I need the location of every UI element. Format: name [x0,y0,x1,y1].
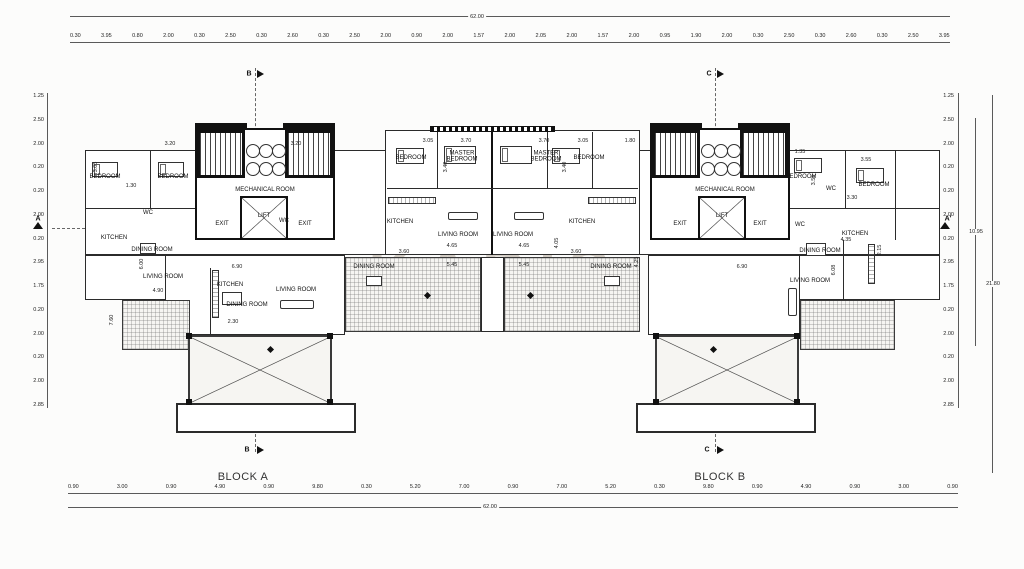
room-label-bedroom: BEDROOM [89,174,120,180]
bottom-total-dimension-line [68,507,958,508]
column-post [794,333,800,339]
room-label-kitchen: KITCHEN [217,282,243,288]
dimension-value: 0.95 [660,33,671,39]
room-label-mechanical-room: MECHANICAL ROOM [695,187,754,193]
room-label-dining-room: DINING ROOM [799,248,840,254]
dimension-value: 9.80 [703,484,714,490]
block-a-balcony-parapet-left [195,123,247,129]
kitchen-counter [388,197,436,204]
plan-dimension: 6.90 [737,264,748,270]
room-label-kitchen: KITCHEN [569,219,595,225]
section-marker-a-prime-arrow [940,222,950,229]
section-marker-c-bottom: C [704,447,709,454]
section-marker-c-bottom-arrow [717,446,724,454]
dimension-value: 3.95 [939,33,950,39]
plan-dimension: 4.90 [153,288,164,294]
bed-symbol [500,146,532,164]
plan-dimension: 3.30 [847,195,858,201]
dimension-value: 5.20 [605,484,616,490]
dimension-value: 2.85 [943,402,954,408]
dimension-value: 1.75 [943,283,954,289]
dimension-value: 1.90 [691,33,702,39]
dimension-value: 3.00 [898,484,909,490]
dimension-value: 0.20 [943,354,954,360]
column-post [327,399,333,405]
top-total-dimension-line [70,16,950,17]
dimension-value: 0.20 [33,307,44,313]
dimension-value: 1.75 [33,283,44,289]
partition-wall [437,132,438,188]
kitchen-counter [212,270,219,318]
partition-wall [790,208,940,209]
section-marker-b-top-arrow [257,70,264,78]
room-label-kitchen: KITCHEN [101,235,127,241]
dimension-value: 2.00 [943,331,954,337]
dimension-value: 2.50 [225,33,236,39]
block-b-label: BLOCK B [694,471,745,483]
room-label-lift: LIFT [716,213,728,219]
room-label-wc: WC [795,222,805,228]
dimension-value: 2.50 [943,117,954,123]
plan-dimension: 3.40 [562,162,568,173]
dimension-value: 0.90 [411,33,422,39]
plan-dimension: 3.40 [443,162,449,173]
room-label-lift: LIFT [258,213,270,219]
floor-plan-drawing: KADIS ESTATES 62.00 0.303.950.802.000.30… [0,0,1024,569]
plan-dimension: 2.30 [228,319,239,325]
dimension-value: 0.30 [815,33,826,39]
dimension-value: 0.20 [943,307,954,313]
room-label-wc: WC [826,186,836,192]
mechanical-equipment-circle [701,144,715,158]
block-a-stairwell-right [285,130,333,178]
plan-dimension: 5.45 [447,262,458,268]
dimension-value: 0.30 [877,33,888,39]
dimension-value: 0.30 [194,33,205,39]
dimension-value: 0.20 [33,188,44,194]
dimension-value: 0.30 [70,33,81,39]
partition-wall [210,268,211,335]
room-label-bedroom: BEDROOM [858,182,889,188]
dimension-value: 2.60 [287,33,298,39]
column-post [794,399,800,405]
top-total-dimension: 62.00 [468,14,486,20]
plan-dimension: 4.25 [634,257,640,268]
top-dimension-chain: 0.303.950.802.000.302.500.302.600.302.50… [70,33,950,39]
block-b-balcony-parapet-right [738,123,790,129]
block-b-stairwell-left [652,130,700,178]
dimension-value: 0.20 [33,164,44,170]
dimension-value: 9.80 [312,484,323,490]
bed-symbol [794,158,822,173]
dimension-value: 1.25 [943,93,954,99]
plan-dimension: 3.05 [578,138,589,144]
room-label-living-room: LIVING ROOM [790,278,830,284]
column-post [186,333,192,339]
mechanical-equipment-circle [714,144,728,158]
room-label-exit: EXIT [673,221,686,227]
room-label-living-room: LIVING ROOM [438,232,478,238]
block-a-lower-platform [176,403,356,433]
dimension-value: 7.00 [556,484,567,490]
kitchen-counter [588,197,636,204]
dimension-value: 0.20 [33,236,44,242]
plan-dimension: 6.08 [831,265,837,276]
section-marker-b-bottom: B [244,447,249,454]
bottom-dimension-chain: 0.903.000.904.900.909.800.305.207.000.90… [68,484,958,490]
room-label-kitchen: KITCHEN [387,219,413,225]
room-label-living-room: LIVING ROOM [493,232,533,238]
dimension-value: 0.80 [132,33,143,39]
dimension-value: 0.30 [256,33,267,39]
section-marker-a-arrow [33,222,43,229]
plan-dimension: 2.15 [877,245,883,256]
section-marker-b-top: B [246,71,251,78]
mechanical-equipment-circle [246,162,260,176]
plan-dimension: 1.80 [625,138,636,144]
mechanical-equipment-circle [259,144,273,158]
plan-dimension: 6.90 [232,264,243,270]
room-label-bedroom: BEDROOM [395,155,426,161]
dimension-value: 0.90 [166,484,177,490]
column-post [186,399,192,405]
top-chain-dimension-line [70,42,950,43]
dimension-value: 3.95 [101,33,112,39]
block-b-lower-apartment [648,255,800,335]
dimension-value: 2.00 [504,33,515,39]
dimension-value: 7.00 [459,484,470,490]
dimension-value: 2.00 [943,378,954,384]
dimension-value: 0.90 [947,484,958,490]
room-label-dining-room: DINING ROOM [590,264,631,270]
column-post [653,333,659,339]
left-chain-dimension-line [47,93,48,408]
dimension-value: 2.00 [33,331,44,337]
block-a-balcony-parapet-right [283,123,335,129]
right-inner-total-dimension: 10.95 [967,229,985,235]
left-dimension-chain: 1.252.502.000.200.202.000.202.951.750.20… [20,93,44,408]
dimension-value: 1.57 [473,33,484,39]
room-label-master-bedroom: MASTER BEDROOM [530,151,562,164]
block-a-stairwell-left [197,130,245,178]
mechanical-equipment-circle [272,162,286,176]
dimension-value: 0.30 [753,33,764,39]
plan-dimension: 3.60 [399,249,410,255]
dining-table-symbol [366,276,382,286]
dimension-value: 1.57 [598,33,609,39]
block-b-lower-platform [636,403,816,433]
block-a-lower-apartment [165,255,345,335]
plan-dimension: 4.35 [841,237,852,243]
bed-symbol [856,168,884,183]
plan-dimension: 1.35 [795,149,806,155]
plan-dimension: 3.05 [93,162,99,173]
plan-dimension: 7.60 [109,315,115,326]
dimension-value: 2.00 [629,33,640,39]
dimension-value: 0.90 [263,484,274,490]
mechanical-equipment-circle [272,144,286,158]
dimension-value: 2.50 [784,33,795,39]
terrace-left-wing [122,300,190,350]
section-marker-c-top: C [706,71,711,78]
dimension-value: 0.20 [33,354,44,360]
partition-wall [387,188,638,189]
terrace-right-wing [800,300,895,350]
dimension-value: 3.00 [117,484,128,490]
sofa-symbol [448,212,478,220]
dimension-value: 2.95 [33,259,44,265]
column-post [327,333,333,339]
partition-wall [843,240,844,300]
plan-dimension: 3.55 [861,157,872,163]
room-label-living-room: LIVING ROOM [143,274,183,280]
plan-dimension: 3.70 [539,138,550,144]
dimension-value: 4.90 [801,484,812,490]
dimension-value: 2.60 [846,33,857,39]
center-top-balcony-strip [430,126,555,132]
block-b-stairwell-right [740,130,788,178]
mechanical-equipment-circle [714,162,728,176]
right-chain-dimension-line [958,93,959,408]
mechanical-equipment-circle [701,162,715,176]
dimension-value: 2.00 [442,33,453,39]
room-label-dining-room: DINING ROOM [226,302,267,308]
dimension-value: 2.05 [535,33,546,39]
plan-dimension: 1.30 [126,183,137,189]
dimension-value: 0.30 [318,33,329,39]
room-label-dining-room: DINING ROOM [131,247,172,253]
sofa-symbol [280,300,314,309]
dimension-value: 2.00 [722,33,733,39]
plan-dimension: 3.60 [571,249,582,255]
room-label-exit: EXIT [298,221,311,227]
dimension-value: 2.50 [33,117,44,123]
block-b-balcony-parapet-left [650,123,702,129]
partition-wall [895,150,896,240]
bottom-total-dimension: 62.00 [481,504,499,510]
center-terrace-gap [481,257,504,332]
dimension-value: 4.90 [215,484,226,490]
room-label-living-room: LIVING ROOM [276,287,316,293]
dimension-value: 0.90 [508,484,519,490]
room-label-mechanical-room: MECHANICAL ROOM [235,187,294,193]
dimension-value: 0.20 [943,188,954,194]
plan-dimension: 3.20 [165,141,176,147]
plan-dimension: 3.55 [811,175,817,186]
dimension-value: 0.30 [654,484,665,490]
mechanical-equipment-circle [727,162,741,176]
section-marker-c-top-arrow [717,70,724,78]
dimension-value: 2.00 [33,378,44,384]
plan-dimension: 6.00 [139,259,145,270]
mechanical-equipment-circle [246,144,260,158]
dimension-value: 2.50 [908,33,919,39]
right-outer-total-dimension: 21.80 [984,281,1002,287]
plan-dimension: 3.70 [461,138,472,144]
block-a-veranda [188,335,332,405]
dimension-value: 2.50 [349,33,360,39]
plan-dimension: 4.65 [447,243,458,249]
block-a-label: BLOCK A [218,471,269,483]
column-post [653,399,659,405]
section-marker-b-bottom-arrow [257,446,264,454]
dimension-value: 0.30 [361,484,372,490]
dimension-value: 2.95 [943,259,954,265]
room-label-dining-room: DINING ROOM [353,264,394,270]
mechanical-equipment-circle [727,144,741,158]
dimension-value: 0.20 [943,164,954,170]
dimension-value: 0.90 [752,484,763,490]
room-label-master-bedroom: MASTER BEDROOM [446,151,478,164]
room-label-exit: EXIT [215,221,228,227]
kitchen-counter [868,244,875,284]
dimension-value: 2.85 [33,402,44,408]
plan-dimension: 4.65 [519,243,530,249]
room-label-bedroom: BEDROOM [157,174,188,180]
dimension-value: 5.20 [410,484,421,490]
room-label-wc: WC [143,210,153,216]
plan-dimension: 3.05 [423,138,434,144]
dimension-value: 2.00 [33,141,44,147]
partition-wall [85,208,195,209]
block-b-veranda [655,335,799,405]
plan-dimension: 3.20 [291,141,302,147]
room-label-wc: WC [279,218,289,224]
plan-dimension: 4.05 [554,238,560,249]
dimension-value: 2.00 [163,33,174,39]
plan-dimension: 5.45 [519,262,530,268]
sofa-symbol [514,212,544,220]
sofa-symbol [788,288,797,316]
bottom-chain-dimension-line [68,493,958,494]
dimension-value: 1.25 [33,93,44,99]
mechanical-equipment-circle [259,162,273,176]
dimension-value: 0.90 [68,484,79,490]
dimension-value: 2.00 [380,33,391,39]
dimension-value: 2.00 [567,33,578,39]
room-label-exit: EXIT [753,221,766,227]
dimension-value: 0.20 [943,236,954,242]
dimension-value: 2.00 [943,141,954,147]
room-label-bedroom: BEDROOM [573,155,604,161]
dimension-value: 0.90 [850,484,861,490]
dining-table-symbol [604,276,620,286]
partition-wall [150,150,151,208]
